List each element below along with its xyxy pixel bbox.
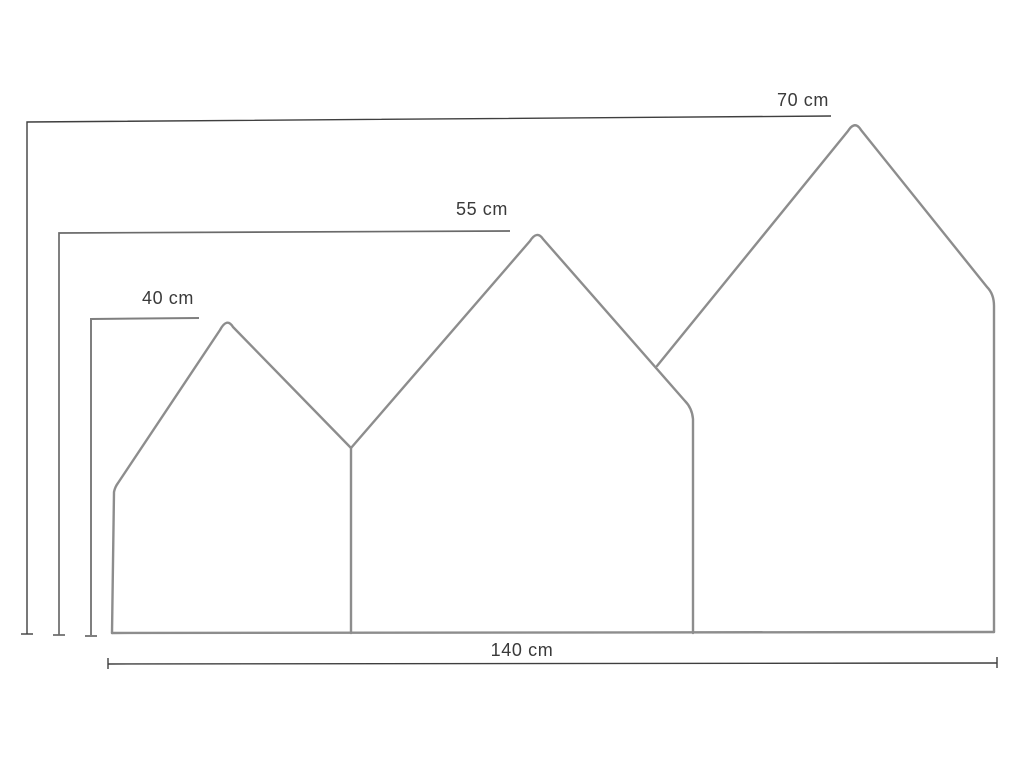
dimension-line-55cm bbox=[59, 231, 510, 635]
large-house-outline bbox=[657, 125, 994, 632]
dimension-line-70cm bbox=[27, 116, 831, 634]
dimension-label-55cm: 55 cm bbox=[456, 199, 508, 219]
dimension-label-40cm: 40 cm bbox=[142, 288, 194, 308]
base-line bbox=[112, 632, 994, 633]
dimension-diagram: 40 cm 55 cm 70 cm 140 cm bbox=[0, 0, 1024, 768]
small-house-outline bbox=[112, 323, 351, 633]
panel-outlines bbox=[112, 125, 994, 633]
dimension-line-140cm bbox=[108, 663, 997, 664]
diagram-canvas: 40 cm 55 cm 70 cm 140 cm bbox=[0, 0, 1024, 768]
dimension-labels: 40 cm 55 cm 70 cm 140 cm bbox=[142, 90, 829, 660]
dimension-label-140cm: 140 cm bbox=[491, 640, 554, 660]
dimension-lines bbox=[21, 116, 997, 669]
dimension-line-40cm bbox=[91, 318, 199, 636]
dimension-label-70cm: 70 cm bbox=[777, 90, 829, 110]
medium-house-outline bbox=[351, 235, 693, 633]
